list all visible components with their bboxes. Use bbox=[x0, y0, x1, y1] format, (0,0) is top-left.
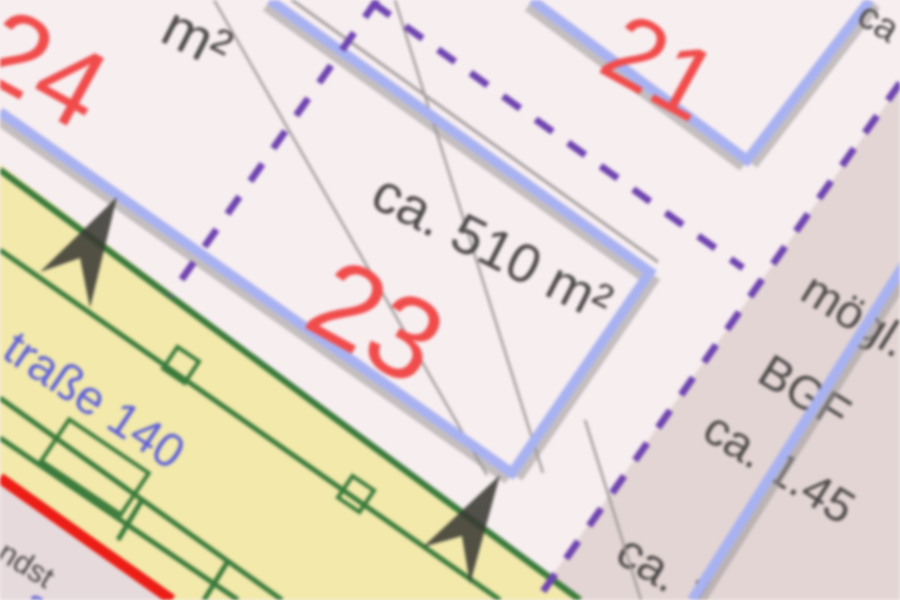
site-plan-map: mögl. BGF ca. 1.45 ca. 1 bbox=[0, 0, 900, 600]
